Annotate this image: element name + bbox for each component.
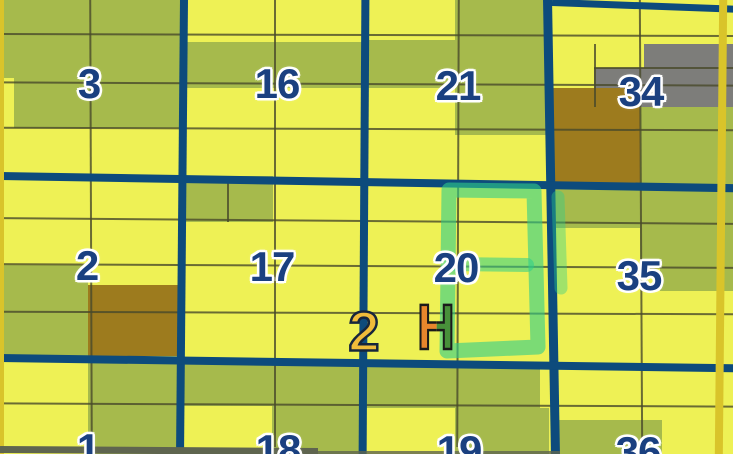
section-label-16: 16 — [255, 60, 300, 108]
section-label-36: 36 — [616, 428, 661, 454]
parcel-olive — [88, 362, 181, 454]
parcel-olive — [183, 362, 362, 406]
section-label-17: 17 — [250, 243, 295, 291]
section-label-34: 34 — [619, 68, 664, 116]
parcel-brown — [88, 285, 178, 356]
section-label-1: 1 — [77, 425, 99, 454]
section-label-2: 2 — [76, 242, 98, 290]
section-label-19: 19 — [437, 427, 482, 454]
section-label-3: 3 — [78, 60, 100, 108]
section-label-35: 35 — [617, 252, 662, 300]
h-marker: H H — [417, 302, 465, 354]
section-line-horizontal — [552, 0, 733, 13]
route-marker-2: 2 — [348, 299, 379, 364]
section-label-18: 18 — [256, 426, 301, 454]
township-boundary-line — [0, 0, 4, 454]
section-label-21: 21 — [436, 62, 481, 110]
section-label-20: 20 — [434, 244, 479, 292]
parcel-line — [594, 44, 596, 107]
plat-map-canvas[interactable]: 3 16 21 34 2 17 20 35 1 18 19 36 2 H H — [0, 0, 733, 454]
